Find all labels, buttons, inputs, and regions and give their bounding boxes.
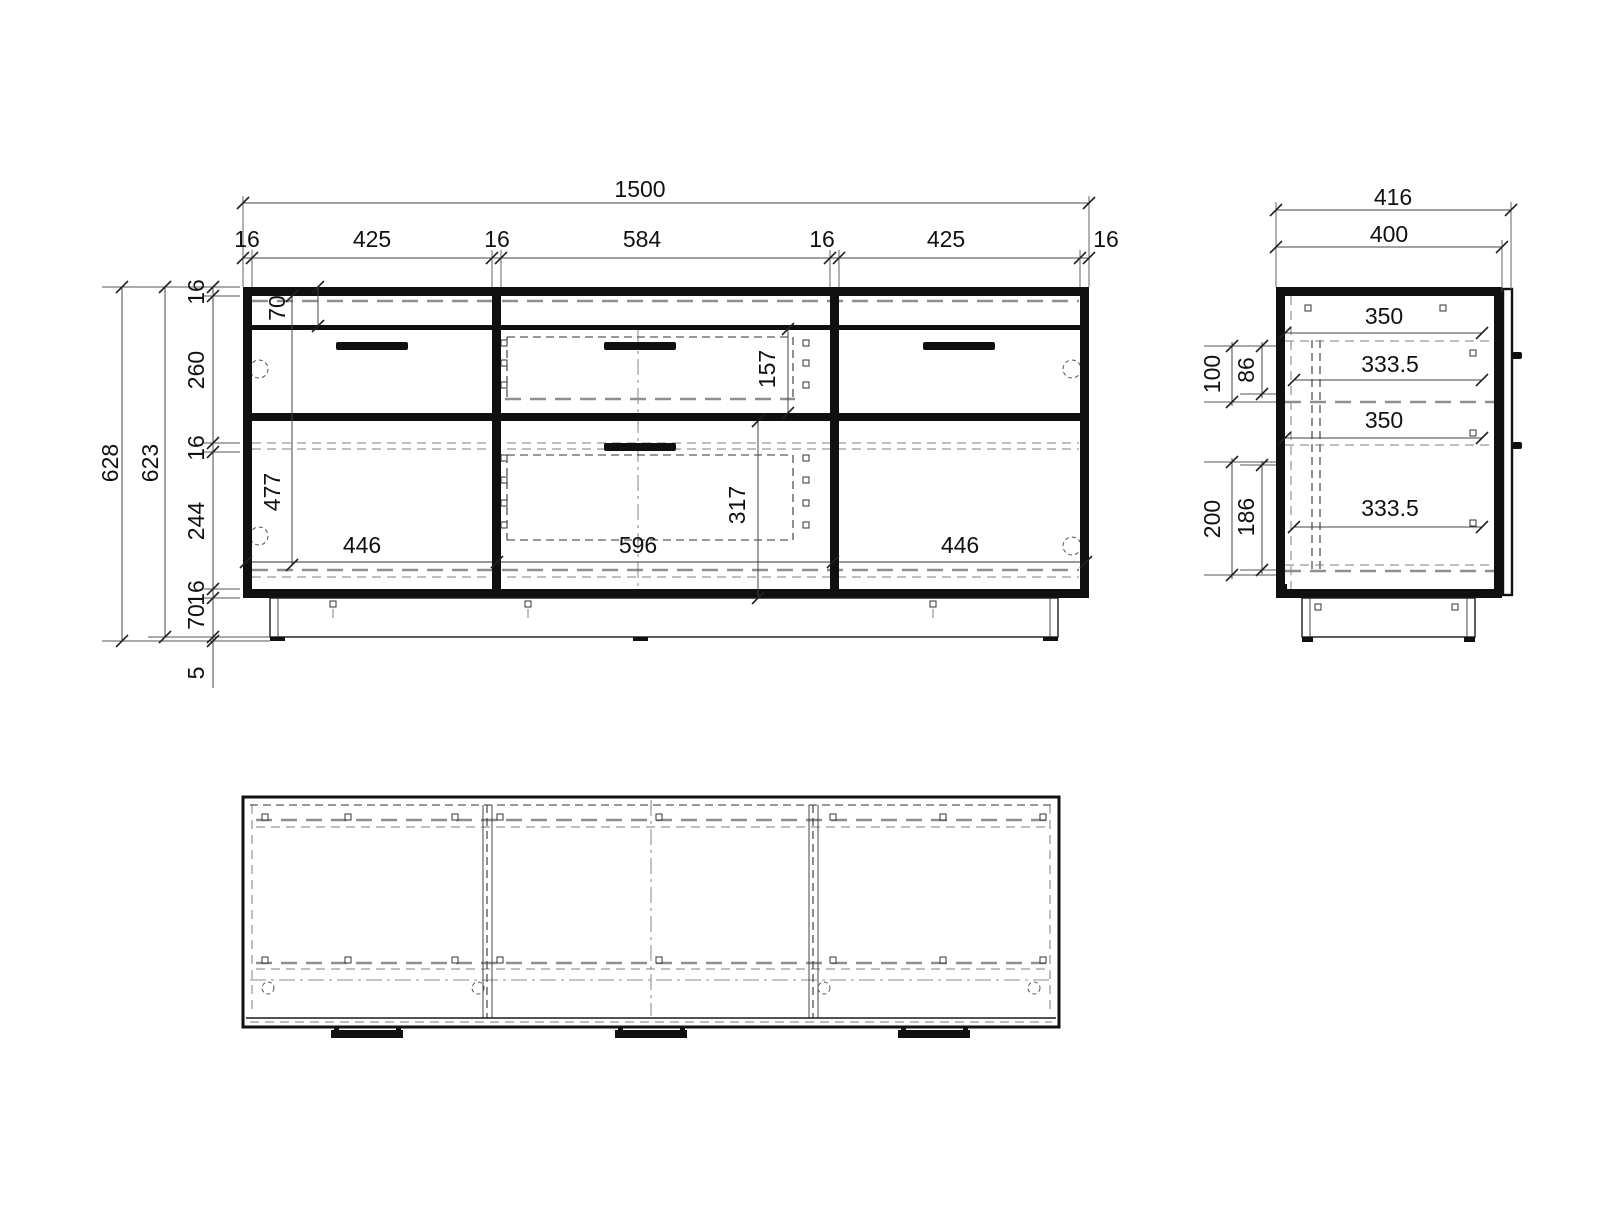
bottom-panel (243, 589, 1089, 598)
foot-glide (1464, 637, 1475, 642)
foot-glide (1302, 637, 1313, 642)
dim-front-seg-3: 584 (623, 226, 662, 252)
dim-left-door-height: 477 (259, 473, 285, 511)
side-top-panel (1276, 287, 1502, 296)
dim-front-vseg-6: 5 (183, 667, 209, 680)
plan-handles (331, 1027, 970, 1038)
dim-side-internal-3: 333.5 (1361, 495, 1419, 521)
side-view (1276, 287, 1522, 642)
dim-front-seg-2: 16 (484, 226, 510, 252)
dim-side-body-depth: 400 (1370, 221, 1408, 247)
dim-front-vseg-5: 70 (183, 604, 209, 630)
dim-front-seg-6: 16 (1093, 226, 1119, 252)
dim-front-vseg-0: 16 (183, 279, 209, 305)
dim-front-inner-height: 623 (137, 444, 163, 482)
partition-left (492, 296, 501, 589)
dim-front-vseg-3: 244 (183, 502, 209, 541)
knob-lower (1512, 442, 1522, 449)
plinth-side (1302, 598, 1475, 642)
dim-front-vseg-2: 16 (183, 435, 209, 461)
dim-front-seg-1: 425 (353, 226, 391, 252)
dim-front-vseg-1: 260 (183, 351, 209, 389)
dim-front-seg-5: 425 (927, 226, 965, 252)
drawer-handles (336, 342, 995, 451)
side-bottom-panel (1276, 589, 1502, 598)
dim-right-door-width: 446 (941, 532, 979, 558)
top-rail-line (252, 325, 1080, 330)
dim-side-internal-1: 333.5 (1361, 351, 1419, 377)
side-front-edge (1494, 287, 1502, 598)
dim-side-total-depth: 416 (1374, 184, 1412, 210)
left-side-panel (243, 287, 252, 598)
furniture-technical-drawing-page: 1500 16 425 16 584 16 425 16 628 623 16 … (0, 0, 1616, 1212)
side-door-panel (1503, 289, 1512, 595)
dim-mid-door-width: 596 (619, 532, 657, 558)
dim-front-vseg-4: 16 (183, 580, 209, 606)
foot-glide (270, 637, 285, 641)
knob-upper (1512, 352, 1522, 359)
dim-top-rail: 70 (264, 295, 290, 321)
dim-side-lower-outer: 200 (1199, 500, 1225, 538)
mid-shelf (252, 413, 1080, 421)
top-panel (243, 287, 1089, 296)
foot-glide (1043, 637, 1058, 641)
side-dimensions: 416 400 350 333.5 350 333.5 100 86 200 (1199, 184, 1517, 581)
dim-front-seg-0: 16 (234, 226, 260, 252)
hinge-symbols (250, 360, 1081, 555)
partition-right (830, 296, 839, 589)
plinth-front (270, 598, 1058, 641)
dim-side-upper-outer: 100 (1199, 355, 1225, 393)
dim-side-internal-2: 350 (1365, 407, 1403, 433)
dim-left-door-width: 446 (343, 532, 381, 558)
dim-side-internal-0: 350 (1365, 303, 1403, 329)
dim-front-seg-4: 16 (809, 226, 835, 252)
foot-glide (633, 637, 648, 641)
dim-front-total-height: 628 (97, 444, 123, 482)
right-side-panel (1080, 287, 1089, 598)
dim-front-total-width: 1500 (614, 176, 665, 202)
dim-side-upper-inner: 86 (1233, 357, 1259, 383)
plan-fittings (262, 814, 1046, 963)
dim-side-lower-inner: 186 (1233, 498, 1259, 536)
sideboard-drawing: 1500 16 425 16 584 16 425 16 628 623 16 … (0, 0, 1616, 1212)
dim-drawer-front-height: 157 (754, 350, 780, 388)
dim-mid-door-height: 317 (724, 486, 750, 524)
plan-view (243, 797, 1059, 1038)
front-view (243, 287, 1363, 641)
